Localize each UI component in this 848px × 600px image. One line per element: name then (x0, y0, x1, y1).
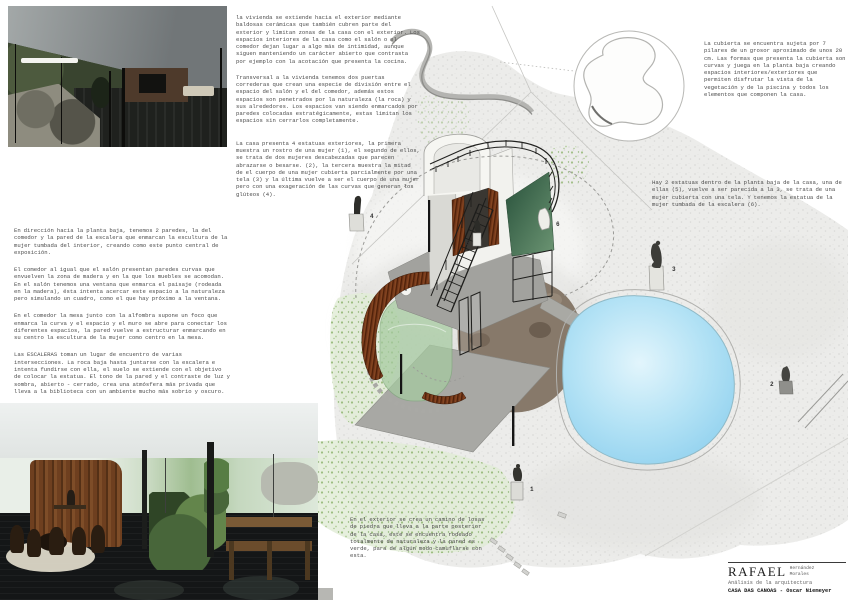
paragraph-stairs: Las ESCALERAS toman un lugar de encuentr… (14, 351, 230, 395)
paragraph-exterior-path: En el exterior se crea un camino de losa… (350, 516, 486, 560)
photo-chair (49, 527, 63, 555)
photo-interior-diningroom (0, 403, 318, 600)
statue-4 (349, 196, 364, 231)
photo-bench-backrest (226, 517, 312, 527)
credits-block: RAFAEL Hernández Morales Análisis de la … (728, 562, 846, 594)
photo-light-bar (21, 58, 78, 63)
paragraph-envelope-2: Transversal a la vivienda tenemos dos pu… (236, 74, 420, 125)
photo-fireplace (139, 74, 165, 94)
text-block-interior-statues: Hay 2 estatuas dentro de la planta baja … (652, 179, 848, 208)
statue-marker-5: 5 (466, 240, 470, 247)
statue-marker-4: 4 (370, 213, 374, 220)
photo-mullion (61, 57, 63, 144)
text-block-interior-analysis: En dirección hacia la planta baja, tenem… (14, 227, 230, 395)
statue-marker-6: 6 (556, 221, 560, 228)
poster-canvas: la vivienda se extiende hacia el exterio… (0, 0, 848, 600)
statue-marker-3: 3 (672, 266, 676, 273)
paragraph-interior-1: En dirección hacia la planta baja, tenem… (14, 227, 230, 256)
photo-interior-livingroom (8, 6, 227, 147)
photo-mullion (165, 458, 166, 513)
roof-shape-detail (574, 31, 684, 141)
photo-mullion (15, 44, 17, 143)
photo-distant-rock (261, 462, 318, 505)
author-surnames: Hernández Morales (790, 565, 815, 577)
photo-bench-leg (267, 541, 272, 580)
credits-subtitle: Análisis de la arquitectura (728, 580, 846, 586)
photo-chair (10, 525, 24, 553)
text-block-envelope: la vivienda se extiende hacia el exterio… (236, 14, 420, 198)
statue-marker-1: 1 (530, 486, 534, 493)
paragraph-interior-statues: Hay 2 estatuas dentro de la planta baja … (652, 179, 848, 208)
paragraph-envelope-1: la vivienda se extiende hacia el exterio… (236, 14, 420, 65)
statue-marker-2: 2 (770, 381, 774, 388)
text-block-roof: La cubierta se encuentra sujeta por 7 pi… (704, 40, 846, 98)
author-surname-2: Morales (790, 572, 815, 578)
photo-bench-leg (305, 541, 310, 580)
credits-project-title: CASA DAS CANOAS - Oscar Niemeyer (728, 588, 846, 594)
author-first-name: RAFAEL (728, 565, 787, 578)
photo-column (207, 442, 214, 556)
author-row: RAFAEL Hernández Morales (728, 565, 846, 578)
paragraph-interior-3: En el comedor la mesa junto con la alfom… (14, 312, 230, 341)
photo-floor-reflection (114, 580, 184, 600)
photo-column (122, 68, 125, 147)
photo-floor-reflection (223, 576, 299, 600)
photo-sofa (183, 86, 214, 96)
text-block-exterior-path: En el exterior se crea un camino de losa… (350, 516, 486, 560)
photo-ceiling (0, 403, 318, 462)
photo-chair (72, 527, 86, 555)
paragraph-interior-2: El comedor al igual que el salón present… (14, 266, 230, 302)
photo-mullion (273, 454, 274, 517)
photo-mullion (220, 48, 222, 147)
photo-side-table (54, 505, 86, 509)
photo-column (142, 450, 148, 549)
photo-chair (91, 525, 105, 553)
paragraph-exterior-statues: La casa presenta 4 estatuas exteriores, … (236, 140, 420, 198)
paragraph-roof: La cubierta se encuentra sujeta por 7 pi… (704, 40, 846, 98)
photo-chair (27, 529, 41, 557)
photo-mullion (109, 71, 111, 147)
photo-bench-leg (229, 541, 234, 580)
